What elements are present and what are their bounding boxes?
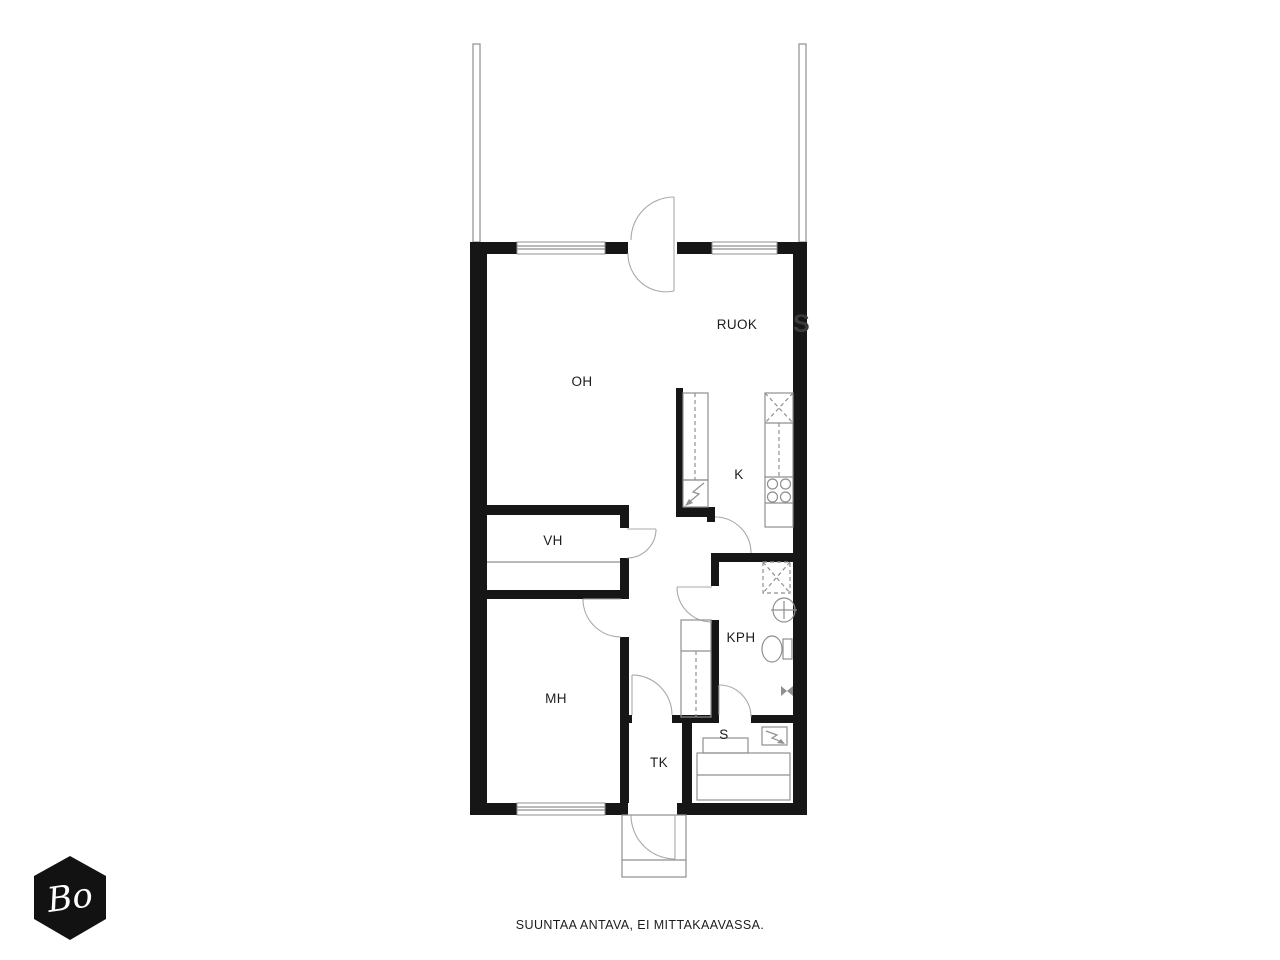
room-label-kph: KPH [727, 630, 756, 645]
sauna-door [719, 685, 751, 717]
balcony-rail-right [799, 44, 806, 242]
disclaimer-text: SUUNTAA ANTAVA, EI MITTAKAAVASSA. [0, 918, 1280, 932]
kph-door [677, 587, 712, 622]
kitchen-door [715, 517, 751, 553]
room-label-oh: OH [571, 374, 592, 389]
floor-plan: S OH RUOK K VH KPH MH TK S [0, 0, 1280, 960]
watermark: S [793, 310, 810, 338]
stove-burners-icon [768, 479, 791, 502]
window-bottom [517, 803, 605, 815]
tk-door [632, 675, 672, 715]
interior-walls [480, 388, 807, 803]
floor-drain-icon [781, 686, 793, 696]
vh-door [627, 529, 656, 558]
electrical-zigzag-icon [685, 483, 704, 506]
mh-door [583, 599, 621, 637]
sauna-heater-icon [762, 727, 787, 745]
room-label-mh: MH [545, 691, 567, 706]
logo-text: Bo [44, 875, 96, 921]
balcony-door [628, 197, 674, 292]
closet-cabinet [681, 620, 711, 717]
room-label-tk: TK [650, 755, 668, 770]
toilet-icon [762, 636, 792, 662]
entrance-door [631, 815, 675, 859]
room-label-k: K [734, 467, 743, 482]
window-top-right [712, 242, 777, 254]
window-top-left [517, 242, 605, 254]
appliance-reservation-icon [765, 393, 793, 423]
washing-machine-icon [763, 562, 790, 593]
balcony-rail-left [473, 44, 480, 242]
sauna-benches [697, 738, 790, 800]
room-label-vh: VH [543, 533, 563, 548]
room-label-s: S [719, 727, 728, 742]
kitchen-counter-right [765, 393, 793, 527]
room-label-ruok: RUOK [717, 317, 758, 332]
